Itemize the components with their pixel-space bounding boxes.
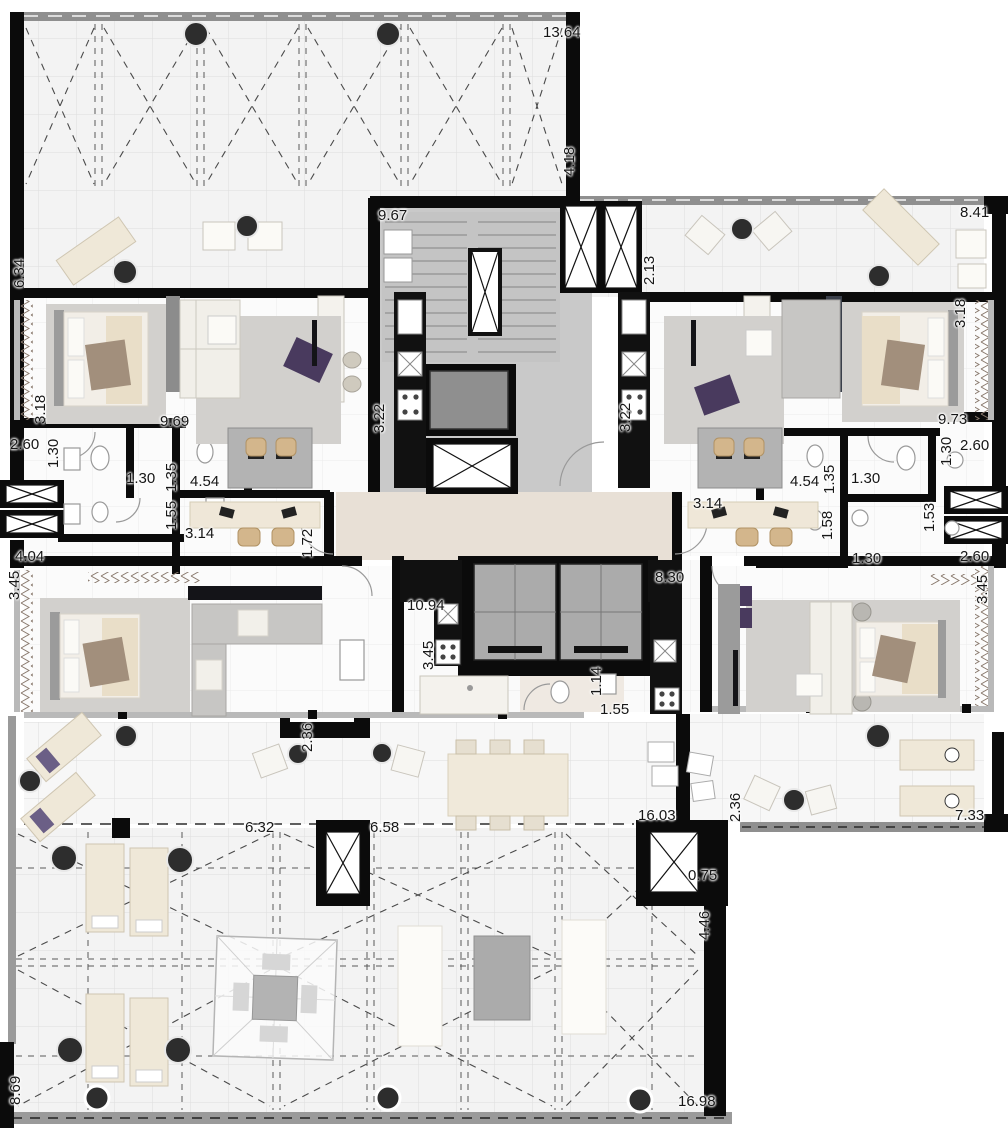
tv-wall (188, 586, 322, 600)
wardrobe-icon (166, 296, 180, 392)
bedroom-right (826, 296, 964, 422)
master-suite-right (718, 584, 960, 714)
living-left (180, 300, 341, 444)
bed-icon (54, 310, 64, 406)
service-elevator-icon (422, 364, 516, 436)
desk-icon (190, 502, 320, 528)
elevator-icon (458, 556, 658, 676)
tv-icon (312, 320, 317, 366)
gazebo-icon (213, 936, 337, 1060)
washer-dryer-icon (384, 230, 412, 254)
dining-table-icon (448, 754, 568, 816)
sink-icon (340, 640, 364, 680)
floor-plan-drawing (0, 0, 1008, 1136)
floor-plan: 13.644.189.678.416.342.133.189.693.223.2… (0, 0, 1008, 1136)
foyer-floor (336, 492, 674, 560)
bedroom-left (46, 296, 180, 424)
